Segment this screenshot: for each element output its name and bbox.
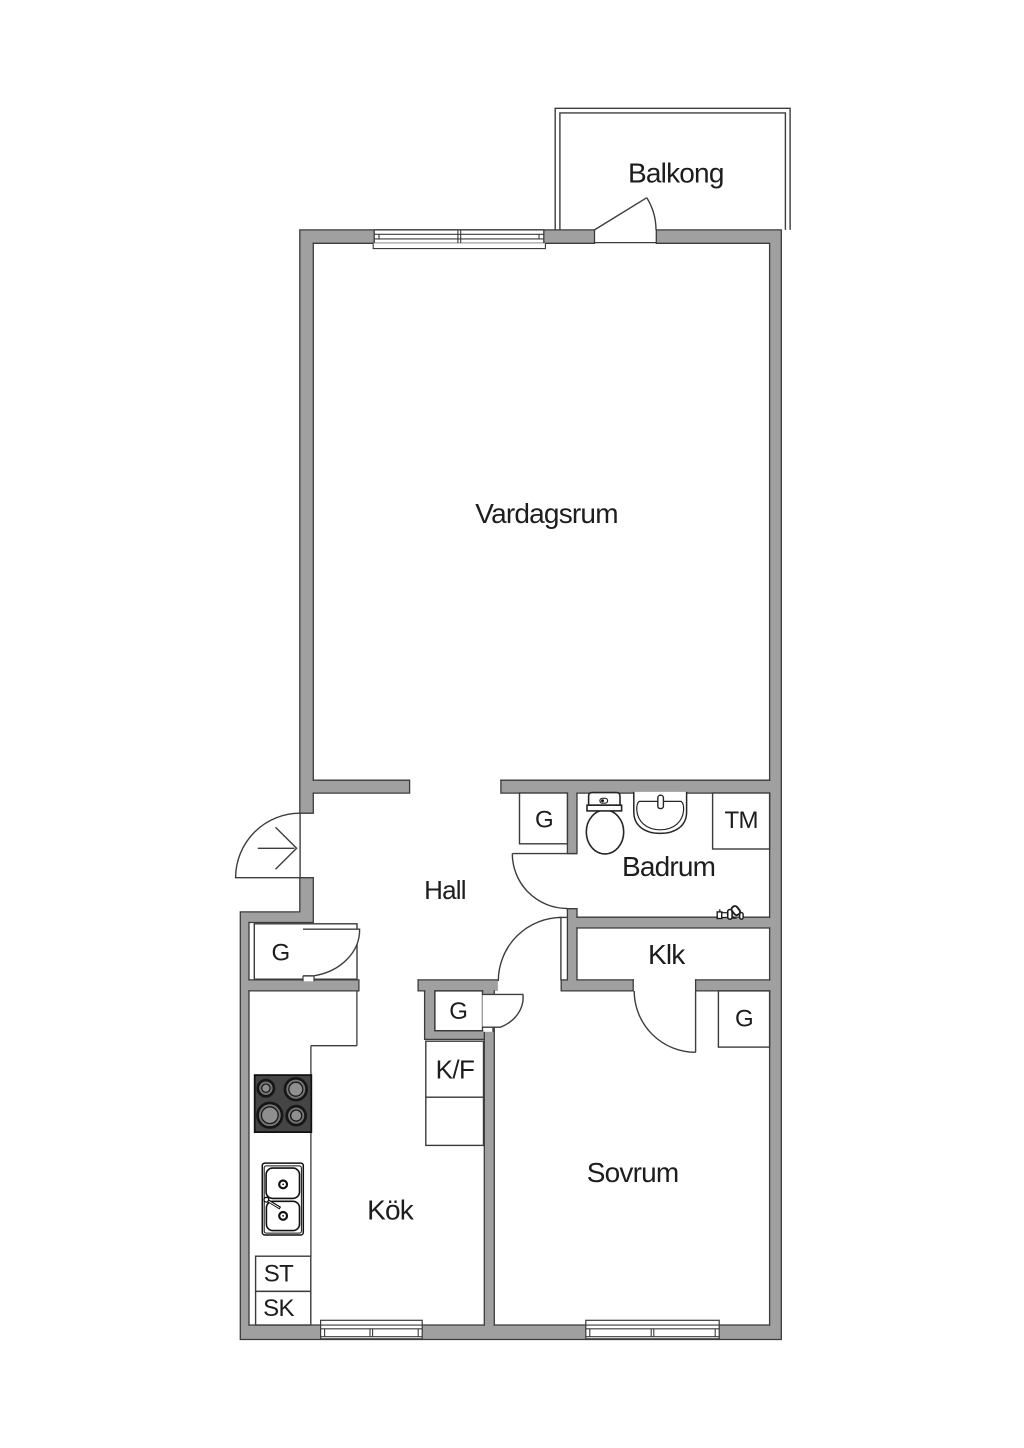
svg-text:Klk: Klk (648, 939, 686, 970)
svg-text:SK: SK (263, 1295, 294, 1322)
svg-text:G: G (735, 1006, 753, 1033)
svg-text:TM: TM (724, 807, 757, 834)
svg-text:Vardagsrum: Vardagsrum (475, 498, 617, 529)
svg-text:K/F: K/F (436, 1055, 475, 1085)
svg-text:Kök: Kök (367, 1194, 415, 1225)
svg-text:G: G (449, 998, 467, 1025)
svg-text:Sovrum: Sovrum (587, 1157, 679, 1188)
svg-text:Badrum: Badrum (622, 851, 715, 882)
svg-text:ST: ST (264, 1261, 294, 1288)
svg-text:G: G (271, 939, 289, 966)
svg-text:Hall: Hall (424, 875, 466, 905)
svg-text:Balkong: Balkong (628, 157, 724, 188)
svg-text:G: G (535, 807, 553, 834)
